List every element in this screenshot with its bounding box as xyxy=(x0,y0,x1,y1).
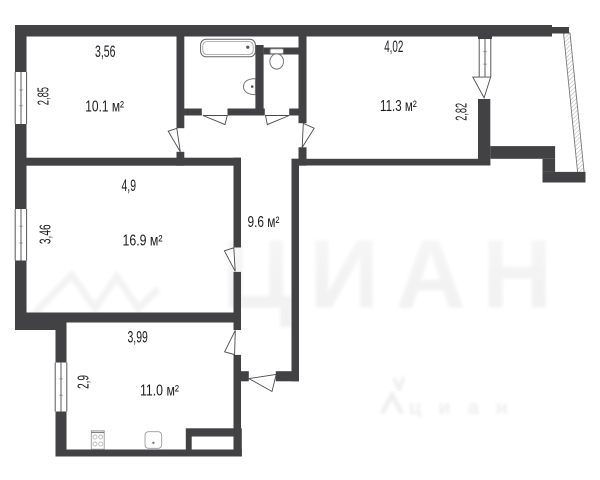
svg-text:2,82: 2,82 xyxy=(453,103,470,121)
svg-text:3,99: 3,99 xyxy=(128,329,148,347)
svg-text:4,9: 4,9 xyxy=(122,177,137,195)
svg-text:10.1 м²: 10.1 м² xyxy=(85,98,124,115)
svg-text:11.0 м²: 11.0 м² xyxy=(140,382,179,399)
svg-text:11.3 м²: 11.3 м² xyxy=(380,98,417,115)
svg-text:3,56: 3,56 xyxy=(95,43,116,61)
svg-text:16.9 м²: 16.9 м² xyxy=(123,233,163,250)
svg-text:3,46: 3,46 xyxy=(37,224,54,244)
svg-text:циан: циан xyxy=(409,397,525,419)
svg-text:ЦИАН: ЦИАН xyxy=(222,220,569,329)
svg-text:2,9: 2,9 xyxy=(75,375,92,389)
svg-text:4,02: 4,02 xyxy=(384,38,403,56)
svg-text:2,85: 2,85 xyxy=(36,87,53,105)
svg-text:9.6 м²: 9.6 м² xyxy=(248,214,280,231)
